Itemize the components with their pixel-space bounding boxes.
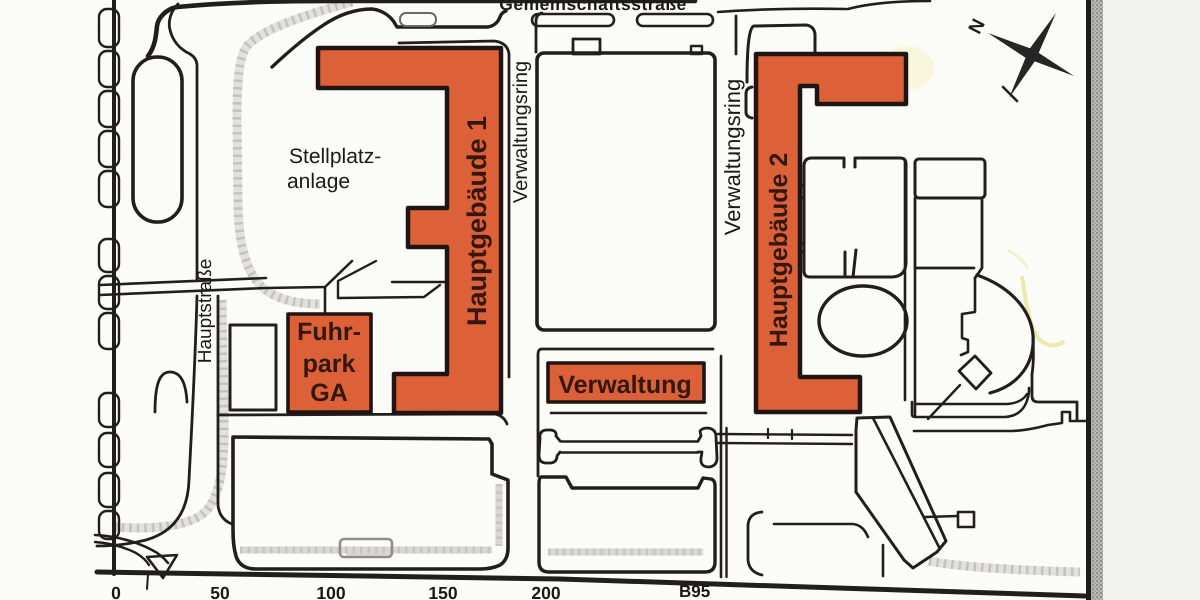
svg-text:Hauptgebäude 1: Hauptgebäude 1 (462, 116, 492, 326)
svg-text:150: 150 (428, 583, 457, 600)
svg-text:Verwaltung: Verwaltung (558, 371, 691, 399)
svg-text:100: 100 (316, 583, 345, 600)
svg-text:0: 0 (111, 583, 121, 600)
svg-text:Verwaltungsring: Verwaltungsring (720, 79, 745, 236)
svg-text:Gemeinschaftsstraße: Gemeinschaftsstraße (499, 0, 687, 14)
svg-text:50: 50 (210, 583, 230, 600)
svg-text:GA: GA (310, 379, 348, 407)
svg-text:Hauptstraße: Hauptstraße (195, 259, 216, 364)
svg-text:Stellplatz-: Stellplatz- (289, 145, 381, 168)
svg-text:Verwaltungsring: Verwaltungsring (510, 61, 532, 203)
svg-text:park: park (303, 350, 356, 378)
svg-text:Fuhr-: Fuhr- (297, 318, 361, 346)
svg-text:200: 200 (531, 583, 560, 600)
svg-text:Hauptgebäude 2: Hauptgebäude 2 (765, 153, 793, 347)
svg-text:B95: B95 (679, 582, 710, 600)
svg-text:anlage: anlage (287, 170, 350, 193)
